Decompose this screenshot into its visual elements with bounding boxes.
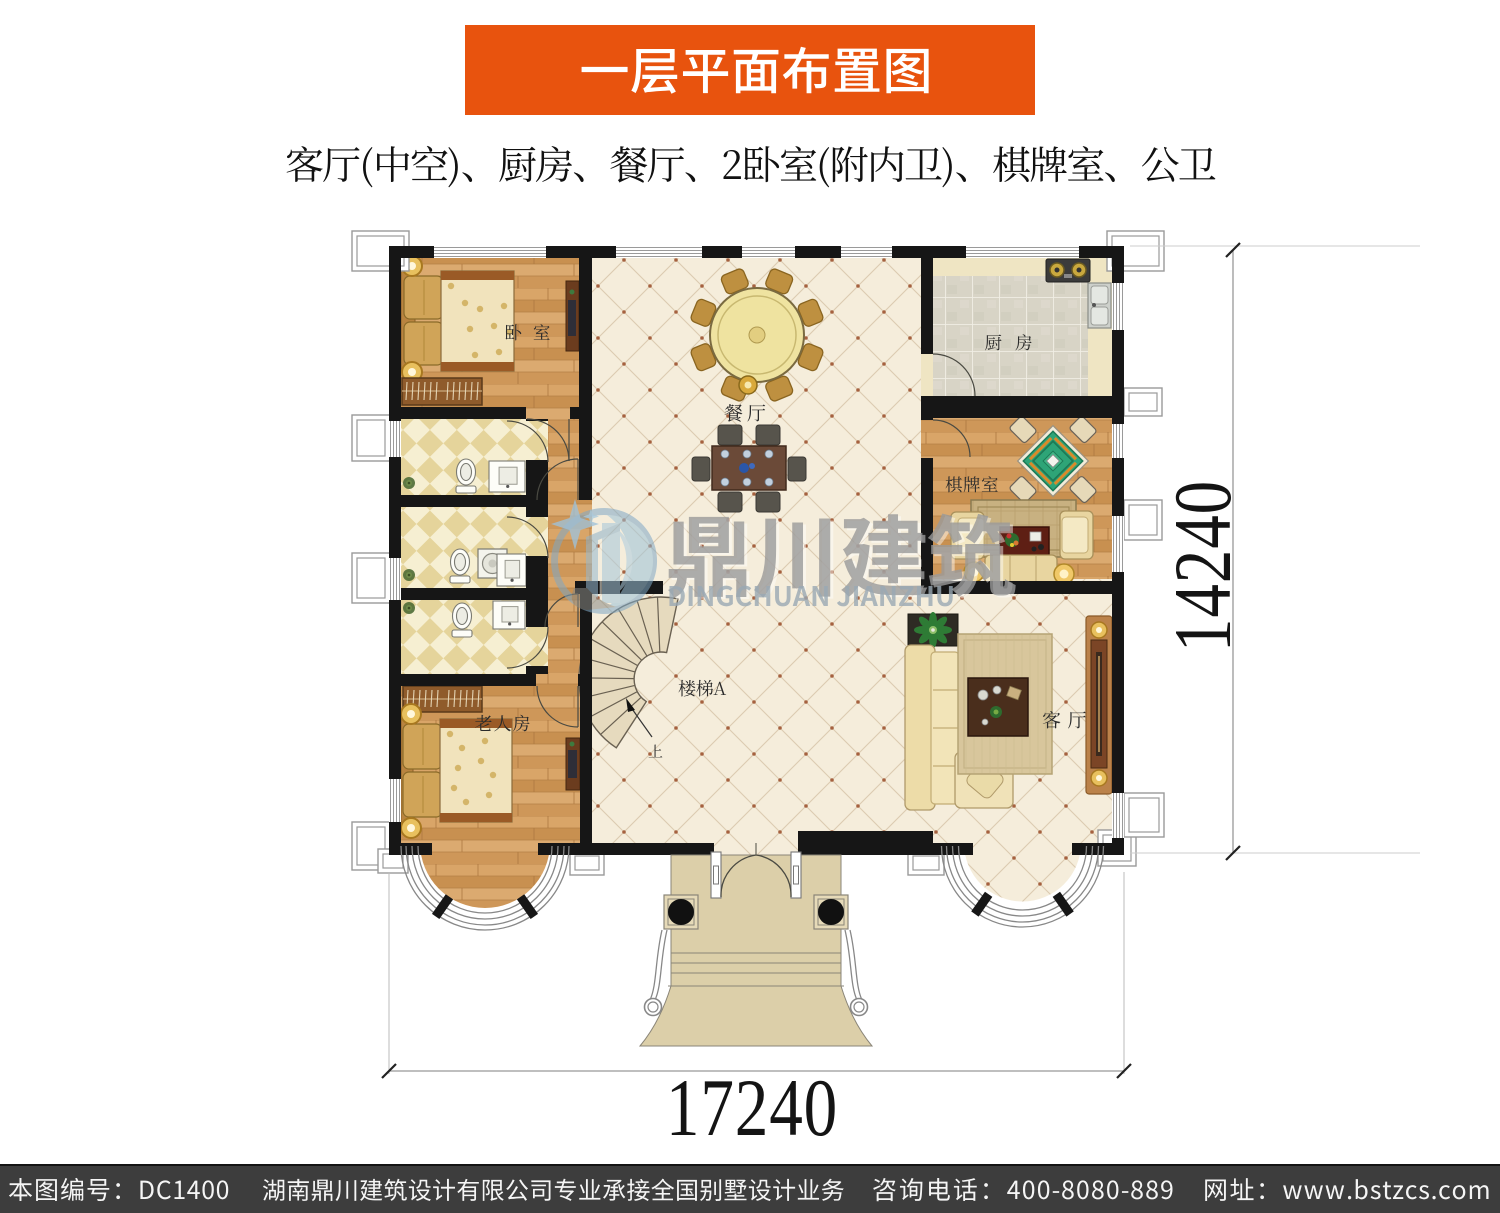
svg-text:14240: 14240 <box>1158 480 1249 652</box>
svg-text:17240: 17240 <box>666 1063 838 1154</box>
